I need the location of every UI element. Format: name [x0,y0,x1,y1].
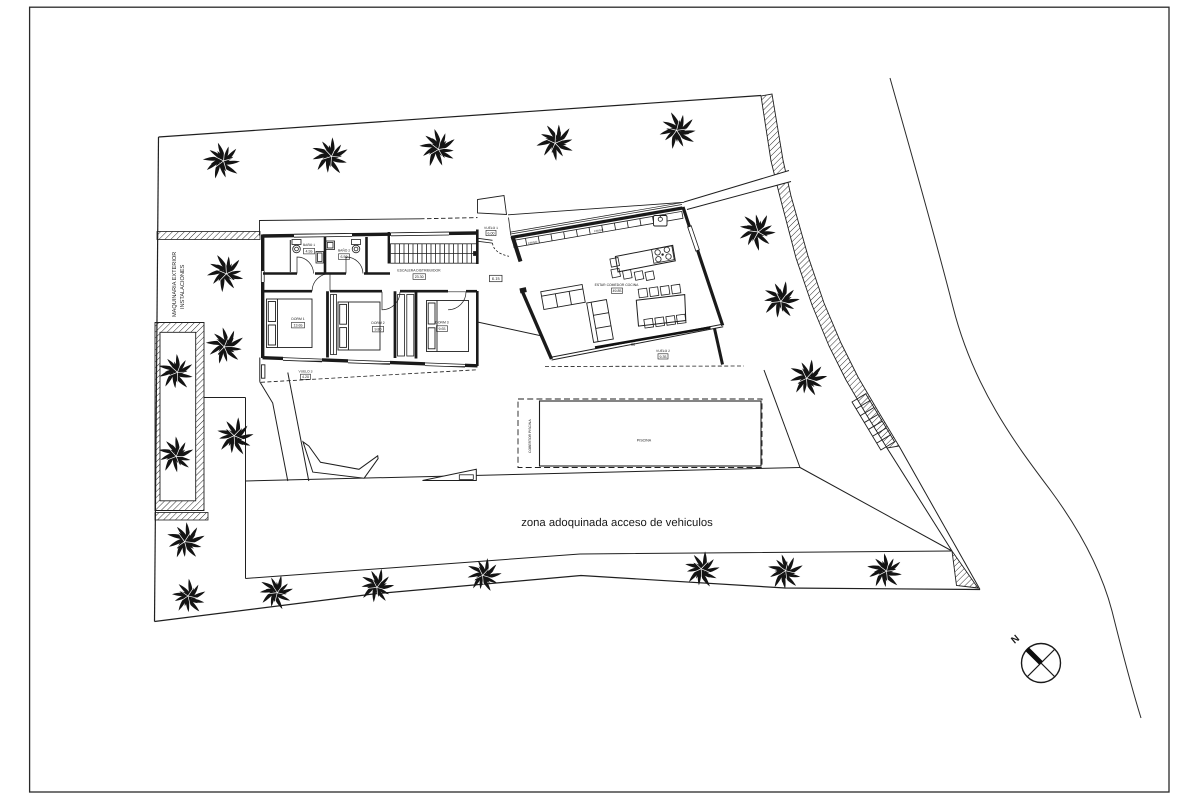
svg-text:BAÑO 2: BAÑO 2 [338,249,350,253]
svg-text:49.85: 49.85 [613,289,622,293]
svg-text:4.20: 4.20 [302,375,309,379]
svg-text:23.30: 23.30 [415,275,424,279]
svg-text:COBERTOR PISCINA: COBERTOR PISCINA [528,419,532,453]
svg-text:VUELO 2: VUELO 2 [656,349,670,353]
svg-text:DORM 2: DORM 2 [371,321,384,325]
svg-text:MAQUINARIA EXTERIOR: MAQUINARIA EXTERIOR [172,252,178,317]
svg-text:zona adoquinada acceso de vehi: zona adoquinada acceso de vehiculos [521,517,713,529]
svg-text:PISCINA: PISCINA [637,439,652,443]
svg-text:DORM 3: DORM 3 [435,321,448,325]
svg-text:BAÑO 1: BAÑO 1 [303,243,315,247]
svg-text:4.55: 4.55 [306,249,313,253]
svg-text:DORM 1: DORM 1 [291,317,304,321]
svg-text:INSTALACIONES: INSTALACIONES [180,264,186,309]
svg-text:9.80: 9.80 [375,328,382,332]
svg-text:6.00: 6.00 [488,231,495,235]
svg-text:6.50: 6.50 [341,255,348,259]
svg-text:9.65: 9.65 [439,327,446,331]
svg-text:ESCALERA DISTRIBUIDOR: ESCALERA DISTRIBUIDOR [397,269,441,273]
svg-text:VUELO 1: VUELO 1 [484,226,498,230]
svg-text:VUELO 3: VUELO 3 [299,370,313,374]
svg-text:13.65: 13.65 [294,324,303,328]
svg-text:ESTAR COMEDOR COCINA: ESTAR COMEDOR COCINA [595,283,640,287]
svg-text:6.15: 6.15 [492,276,501,281]
svg-text:9.35: 9.35 [660,355,667,359]
